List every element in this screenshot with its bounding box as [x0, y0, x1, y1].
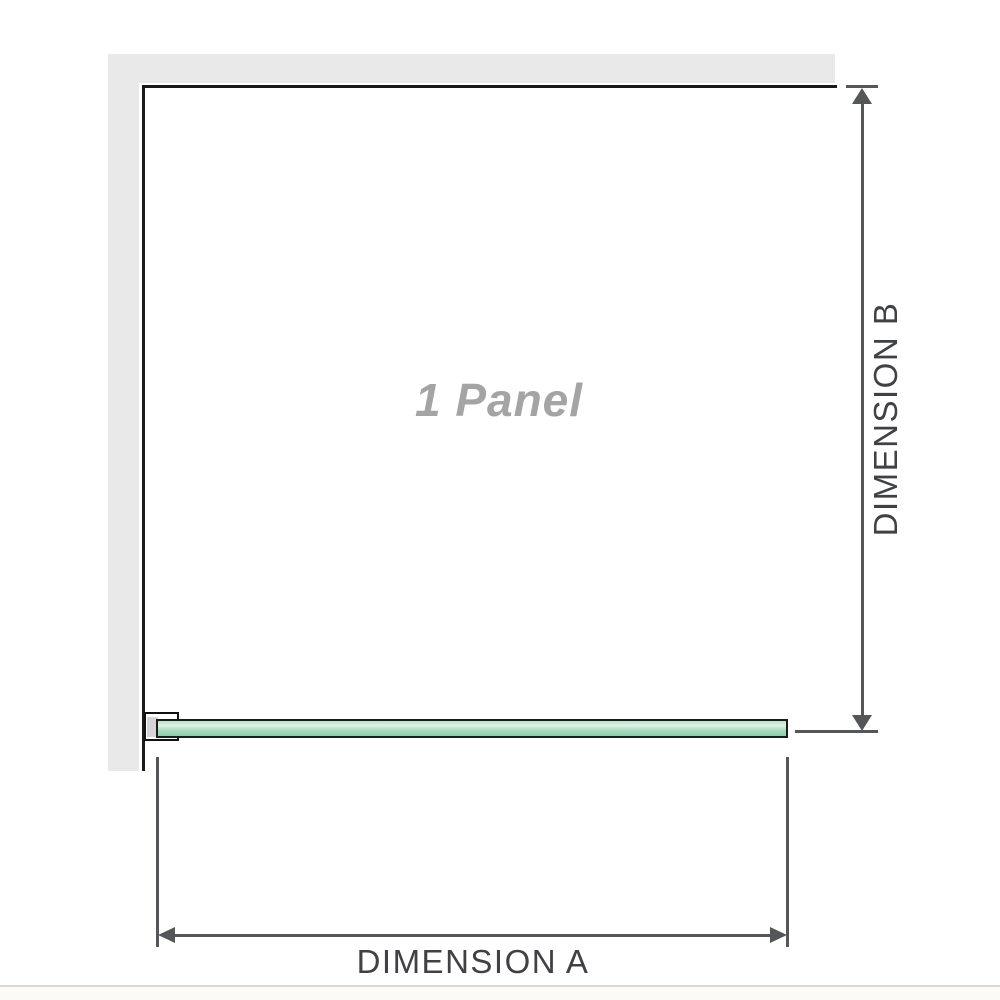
- panel-outline-left: [142, 85, 145, 771]
- dimension-a-left-extension-line: [156, 757, 159, 947]
- bottom-strip: [0, 987, 1000, 1000]
- dimension-a-line: [166, 934, 779, 937]
- wall-top-bar: [108, 54, 835, 83]
- wall-left-bar: [108, 54, 139, 771]
- dimension-b-label: DIMENSION B: [867, 302, 905, 537]
- arrow-down-icon: [852, 715, 872, 731]
- panel-outline-top: [142, 85, 837, 88]
- arrow-right-icon: [770, 927, 787, 943]
- panel-dimension-diagram: 1 Panel DIMENSION B DIMENSION A: [0, 0, 1000, 1000]
- dimension-a-right-extension-line: [786, 757, 789, 947]
- arrow-left-icon: [158, 927, 175, 943]
- glass-panel-bar: [156, 719, 788, 738]
- dimension-a-label: DIMENSION A: [357, 943, 590, 981]
- dimension-b-line: [861, 100, 864, 718]
- arrow-up-icon: [852, 88, 872, 104]
- panel-count-label: 1 Panel: [415, 373, 583, 427]
